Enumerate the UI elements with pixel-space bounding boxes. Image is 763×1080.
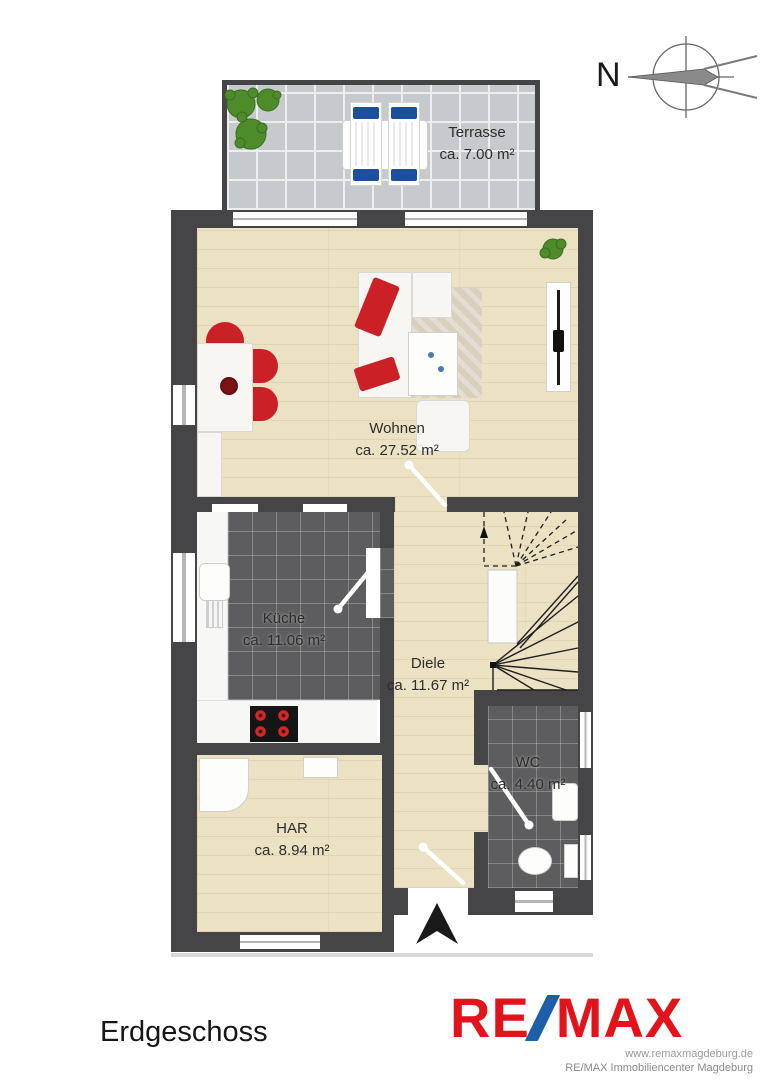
floor-title: Erdgeschoss — [100, 1016, 268, 1049]
room-name: HAR — [254, 818, 329, 840]
wall-wc-north — [474, 690, 578, 706]
wall-east — [578, 228, 593, 915]
room-label-har: HAR ca. 8.94 m² — [254, 818, 329, 862]
table-decor — [438, 366, 444, 372]
terrace-wall-left — [222, 80, 227, 210]
compass-north-label: N — [596, 56, 621, 95]
entry-door-opening — [408, 888, 468, 915]
window — [173, 553, 195, 642]
wall-entry-left — [394, 888, 408, 915]
room-label-terrasse: Terrasse ca. 7.00 m² — [439, 122, 514, 166]
wall-wc-west-bottom — [474, 832, 488, 888]
terrace-wall-right — [535, 80, 540, 210]
terrace-chair — [388, 102, 420, 186]
room-area: ca. 8.94 m² — [254, 840, 329, 862]
washing-machine — [199, 758, 249, 812]
kitchen-door-opening — [380, 548, 394, 618]
window — [233, 212, 357, 226]
kitchen-faucet — [206, 600, 223, 628]
living-door-opening — [395, 497, 447, 512]
toilet-tank — [564, 844, 578, 878]
terrace-chair — [350, 102, 382, 186]
table-decor — [428, 352, 434, 358]
room-area: ca. 7.00 m² — [439, 144, 514, 166]
stove-burner — [278, 726, 289, 737]
room-label-wc: WC ca. 4.40 m² — [490, 752, 565, 796]
chair-slats — [393, 122, 415, 166]
room-name: Terrasse — [439, 122, 514, 144]
room-name: Diele — [387, 653, 469, 675]
room-label-diele: Diele ca. 11.67 m² — [387, 653, 469, 697]
window — [580, 712, 591, 768]
chair-frame — [353, 169, 379, 181]
remax-logo: RE MAX — [450, 992, 683, 1044]
window — [515, 891, 553, 912]
table-bowl — [220, 377, 238, 395]
coffee-table — [408, 332, 458, 396]
kitchen-sink — [199, 563, 230, 601]
remax-logo-slash — [525, 995, 560, 1041]
room-label-wohnen: Wohnen ca. 27.52 m² — [355, 418, 438, 462]
room-label-kueche: Küche ca. 11.06 m² — [243, 608, 325, 652]
room-name: Wohnen — [355, 418, 438, 440]
remax-logo-max: MAX — [556, 992, 683, 1044]
stove-burner — [278, 710, 289, 721]
chair-frame — [353, 107, 379, 119]
terrace-wall-top — [222, 80, 540, 85]
wall-living-south-right — [447, 497, 578, 512]
room-area: ca. 11.67 m² — [387, 675, 469, 697]
kitchen-floor — [228, 512, 380, 700]
room-name: WC — [490, 752, 565, 774]
window — [405, 212, 527, 226]
wall-kitchen-har — [197, 743, 394, 755]
company-text: RE/MAX Immobiliencenter Magdeburg — [565, 1062, 753, 1074]
stove-burner — [255, 726, 266, 737]
chair-slats — [355, 122, 377, 166]
stove — [250, 706, 298, 742]
window — [580, 835, 591, 880]
compass-rose-icon — [628, 36, 757, 118]
window — [240, 935, 320, 949]
room-area: ca. 11.06 m² — [243, 630, 325, 652]
tv-mount — [553, 330, 564, 352]
sideboard — [197, 432, 222, 497]
wall-wc-west-top — [474, 706, 488, 765]
utility-cabinet — [303, 757, 338, 778]
stove-burner — [255, 710, 266, 721]
chair-frame — [391, 107, 417, 119]
pass-through-slit — [303, 504, 347, 512]
room-name: Küche — [243, 608, 325, 630]
plan-shadow-line — [171, 953, 593, 957]
website-text: www.remaxmagdeburg.de — [625, 1048, 753, 1060]
remax-logo-re: RE — [450, 992, 530, 1044]
toilet-bowl — [518, 847, 552, 875]
sofa-corner — [412, 272, 452, 318]
room-area: ca. 27.52 m² — [355, 440, 438, 462]
chair-frame — [391, 169, 417, 181]
room-area: ca. 4.40 m² — [490, 774, 565, 796]
wall-har-east — [382, 755, 394, 932]
window — [173, 385, 195, 425]
pass-through-slit — [212, 504, 258, 512]
floorplan-page: N Terrasse ca. 7.00 m² Wohnen ca. 27.52 … — [0, 0, 763, 1080]
kitchen-door-jamb — [366, 548, 380, 618]
wall-kitchen-east-top — [380, 512, 394, 548]
